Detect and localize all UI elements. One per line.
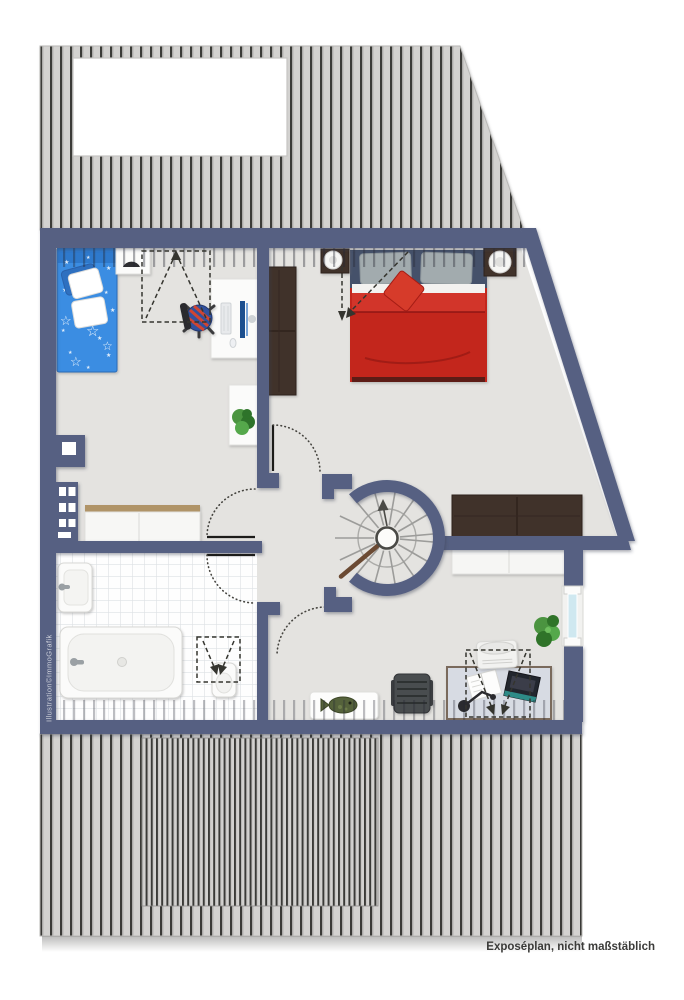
printer	[476, 640, 517, 669]
wall-top	[40, 228, 528, 248]
svg-text:★: ★	[110, 307, 115, 314]
sideboard-dark	[452, 495, 582, 537]
watermark-text: Illustration©ImmoGrafik	[45, 634, 54, 722]
roof-bottom	[40, 734, 582, 952]
monitor-stand	[248, 315, 256, 323]
floor-plan-page: ★ ★ ★ ★ ★ ★ ★ ★ ★ ★ ★ ☆ ☆ ☆ ☆ ☆	[0, 0, 684, 1000]
monitor-icon	[240, 301, 245, 338]
wall-bedroom-south	[440, 536, 631, 550]
window-glass	[568, 594, 577, 638]
dormer-window	[73, 58, 287, 156]
drain-icon	[118, 658, 127, 667]
bathtub	[60, 627, 182, 698]
chimney-flue	[62, 442, 76, 455]
svg-text:☆: ☆	[60, 313, 72, 328]
wall-bath-north	[56, 541, 262, 553]
plant-shelf	[229, 385, 258, 445]
wall-right-upper	[564, 541, 583, 586]
mouse-icon	[230, 339, 236, 348]
keyboard-icon	[221, 303, 231, 334]
sink	[58, 563, 92, 612]
window-sill-bottom	[564, 638, 581, 646]
double-bed	[350, 250, 487, 382]
svg-text:★: ★	[104, 290, 109, 296]
roof-bottom-dense-hatch	[142, 738, 378, 906]
stair-center-post	[377, 528, 398, 549]
svg-text:★: ★	[61, 328, 66, 334]
wall-bath-east-flange	[257, 602, 280, 615]
window-sill-top	[564, 586, 581, 594]
floor-plan-canvas: ★ ★ ★ ★ ★ ★ ★ ★ ★ ★ ★ ☆ ☆ ☆ ☆ ☆	[0, 0, 684, 1000]
kids-desk	[211, 279, 259, 358]
svg-text:★: ★	[86, 365, 91, 371]
disclaimer-text: Exposéplan, nicht maßstäblich	[486, 941, 655, 953]
wall-divider-foot	[257, 473, 279, 488]
wall-bottom	[40, 720, 582, 734]
roof-top	[40, 46, 524, 230]
svg-text:☆: ☆	[102, 339, 113, 353]
svg-text:☆: ☆	[70, 354, 82, 369]
wall-divider	[257, 248, 269, 488]
wall-bath-east	[257, 602, 268, 720]
sideboard-white	[452, 546, 565, 574]
pillow-white-2	[71, 296, 108, 328]
window	[562, 586, 583, 646]
svg-text:★: ★	[106, 352, 111, 359]
hall-cabinet	[85, 505, 200, 545]
bed-foot	[352, 377, 485, 382]
wall-right-lower	[564, 646, 583, 722]
